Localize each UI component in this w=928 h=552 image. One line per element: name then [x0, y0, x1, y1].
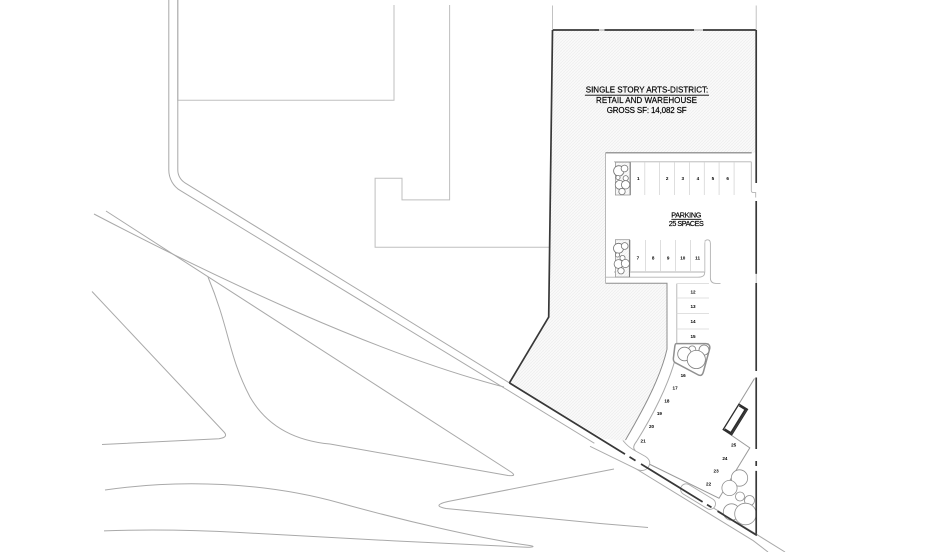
svg-text:9: 9	[667, 255, 670, 260]
svg-text:10: 10	[680, 255, 686, 260]
svg-text:25 SPACES: 25 SPACES	[669, 219, 704, 228]
svg-text:SINGLE STORY ARTS-DISTRICT:: SINGLE STORY ARTS-DISTRICT:	[586, 86, 709, 95]
svg-text:17: 17	[673, 386, 679, 391]
svg-text:13: 13	[690, 304, 696, 309]
svg-text:15: 15	[690, 334, 696, 339]
svg-text:24: 24	[722, 456, 728, 461]
svg-text:16: 16	[681, 373, 687, 378]
svg-text:7: 7	[637, 255, 640, 260]
svg-text:2: 2	[666, 176, 669, 181]
svg-text:4: 4	[697, 176, 700, 181]
svg-text:12: 12	[690, 290, 696, 295]
svg-text:23: 23	[714, 469, 720, 474]
svg-text:21: 21	[641, 439, 647, 444]
svg-text:RETAIL AND WAREHOUSE: RETAIL AND WAREHOUSE	[596, 96, 697, 105]
svg-text:3: 3	[682, 176, 685, 181]
svg-text:14: 14	[690, 319, 696, 324]
svg-text:GROSS SF: 14,082 SF: GROSS SF: 14,082 SF	[607, 106, 687, 115]
svg-text:5: 5	[712, 176, 715, 181]
svg-text:20: 20	[649, 424, 655, 429]
svg-text:11: 11	[695, 255, 700, 260]
svg-text:6: 6	[726, 176, 729, 181]
svg-text:22: 22	[706, 482, 712, 487]
svg-text:8: 8	[652, 255, 655, 260]
svg-text:1: 1	[637, 176, 640, 181]
svg-text:25: 25	[731, 442, 737, 447]
svg-text:18: 18	[664, 398, 670, 403]
svg-text:19: 19	[657, 411, 663, 416]
